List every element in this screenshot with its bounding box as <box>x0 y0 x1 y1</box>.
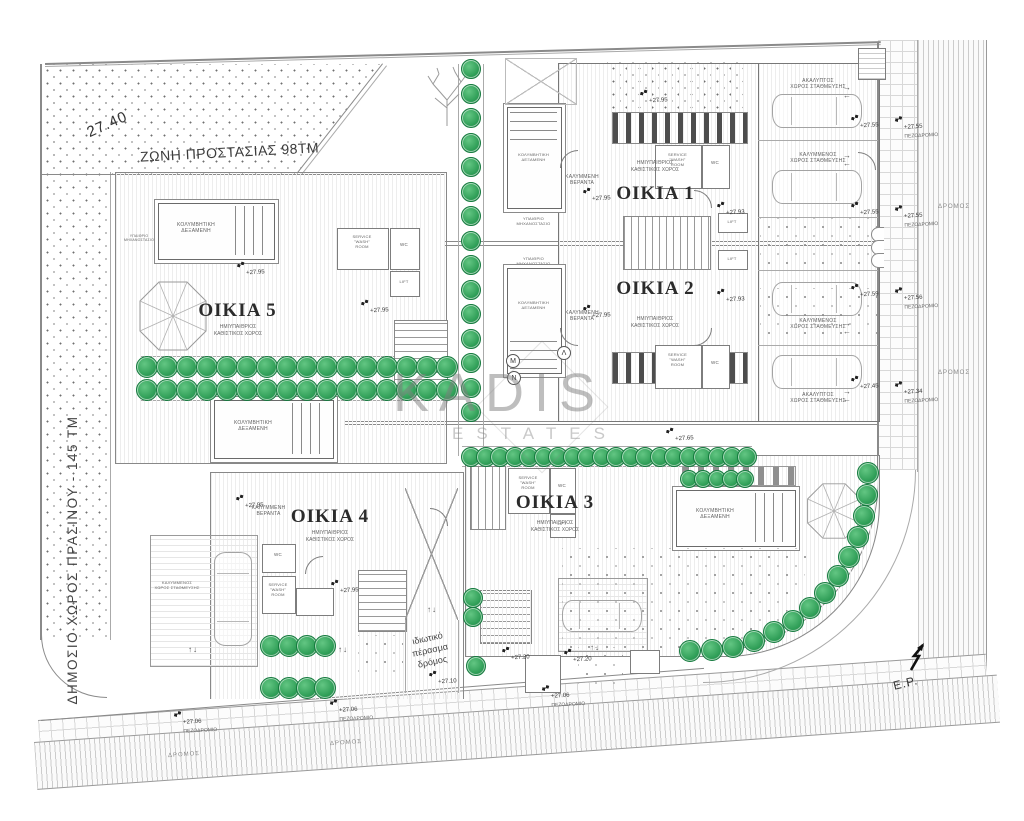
elevation-marker: +27.95 <box>237 493 264 512</box>
elevation-value: +27.95 <box>340 587 359 594</box>
elevation-value: +27.34 <box>904 389 923 396</box>
elevation-marker: +27.56ΠΕΖΟΔΡΟΜΙΟ <box>895 285 938 311</box>
elevation-marker: +27.20 <box>503 645 530 664</box>
elevation-marker: +27.95 <box>584 303 611 322</box>
updown-arrows-icon: ↑↓ <box>427 606 437 614</box>
elevation-marker: +27.10 <box>430 669 457 688</box>
benchmark-flag-icon <box>895 380 902 387</box>
elevation-value: +27.93 <box>726 296 745 303</box>
elevation-value: +27.93 <box>726 209 745 216</box>
elevation-marker: +27.45 <box>852 374 879 393</box>
benchmark-flag-icon <box>331 579 338 586</box>
benchmark-flag-icon <box>717 201 724 208</box>
elevation-value: +27.20 <box>573 656 592 663</box>
benchmark-flag-icon <box>361 299 368 306</box>
benchmark-flag-icon <box>895 115 902 122</box>
benchmark-flag-icon <box>502 646 509 653</box>
elevation-value: +27.06 <box>339 707 358 714</box>
sidewalk-label: ΠΕΖΟΔΡΟΜΙΟ <box>339 716 373 723</box>
benchmark-flag-icon <box>583 187 590 194</box>
elevation-marker: +27.95 <box>584 186 611 205</box>
elevation-value: +27.56 <box>904 295 923 302</box>
benchmark-flag-icon <box>851 114 858 121</box>
elevation-value: +27.95 <box>592 195 611 202</box>
elevation-value: +27.95 <box>370 307 389 314</box>
benchmark-flag-icon <box>895 204 902 211</box>
elevation-value: +27.59 <box>860 291 879 298</box>
benchmark-flag-icon <box>429 670 436 677</box>
leftright-arrows-icon: → ← <box>843 388 852 404</box>
benchmark-flag-icon <box>717 288 724 295</box>
watermark-tagline: ESTATES <box>452 424 618 444</box>
elevation-value: +27.95 <box>592 312 611 319</box>
elevation-marker: +27.95 <box>641 88 668 107</box>
elevation-value: +27.06 <box>551 693 570 700</box>
elevation-marker: +27.55 <box>852 113 879 132</box>
elevation-marker: +27.34ΠΕΖΟΔΡΟΜΙΟ <box>895 379 938 405</box>
elevation-marker: +27.59 <box>852 282 879 301</box>
site-plan-canvas: SERVICE "WASH" ROOM WC LIFT LIFT SERVICE… <box>0 0 1024 821</box>
watermark-name: KADIS <box>393 362 605 424</box>
benchmark-flag-icon <box>237 261 244 268</box>
benchmark-flag-icon <box>583 304 590 311</box>
benchmark-flag-icon <box>851 375 858 382</box>
elevation-marker: +27.95 <box>362 298 389 317</box>
leftright-arrows-icon: → ← <box>843 152 852 168</box>
benchmark-flag-icon <box>330 698 337 705</box>
elevation-marker: +27.06ΠΕΖΟΔΡΟΜΙΟ <box>542 683 585 709</box>
elevation-value: +27.95 <box>246 269 265 276</box>
elevation-value: +27.55 <box>904 213 923 220</box>
elevation-marker: +27.55ΠΕΖΟΔΡΟΜΙΟ <box>895 114 938 140</box>
benchmark-flag-icon <box>564 648 571 655</box>
elevation-value: +27.55 <box>860 209 879 216</box>
sidewalk-label: ΠΕΖΟΔΡΟΜΙΟ <box>904 133 938 140</box>
elevation-marker: +27.93 <box>718 200 745 219</box>
elevation-marker: +27.55 <box>852 200 879 219</box>
elevation-value: +27.65 <box>675 435 694 442</box>
sidewalk-label: ΠΕΖΟΔΡΟΜΙΟ <box>904 398 938 405</box>
benchmark-flag-icon <box>851 201 858 208</box>
sidewalk-label: ΠΕΖΟΔΡΟΜΙΟ <box>551 702 585 709</box>
elevation-value: +27.95 <box>245 502 264 509</box>
elevation-marker: +27.20 <box>565 647 592 666</box>
updown-arrows-icon: ↑↓ <box>338 646 348 654</box>
benchmark-flag-icon <box>666 427 673 434</box>
elevation-value: +27.06 <box>183 719 202 726</box>
leftright-arrows-icon: → ← <box>843 84 852 100</box>
elevation-marker: +27.06ΠΕΖΟΔΡΟΜΙΟ <box>174 709 217 735</box>
elevation-value: +27.45 <box>860 383 879 390</box>
benchmark-flag-icon <box>542 684 549 691</box>
elevation-marker: +27.95 <box>238 260 265 279</box>
benchmark-flag-icon <box>851 283 858 290</box>
benchmark-flag-icon <box>640 89 647 96</box>
elevation-value: +27.10 <box>438 678 457 685</box>
benchmark-flag-icon <box>236 494 243 501</box>
elevation-value: +27.55 <box>860 122 879 129</box>
updown-arrows-icon: ↑↓ <box>590 644 600 652</box>
elevation-marker: +27.06ΠΕΖΟΔΡΟΜΙΟ <box>330 697 373 723</box>
elevation-marker: +27.93 <box>718 287 745 306</box>
sidewalk-label: ΠΕΖΟΔΡΟΜΙΟ <box>904 222 938 229</box>
elevation-marker: +27.65 <box>667 426 694 445</box>
elevation-marker: +27.55ΠΕΖΟΔΡΟΜΙΟ <box>895 203 938 229</box>
elevation-marker: +27.95 <box>332 578 359 597</box>
leftright-arrows-icon: → ← <box>843 320 852 336</box>
benchmark-flag-icon <box>895 286 902 293</box>
updown-arrows-icon: ↑↓ <box>188 646 198 654</box>
sidewalk-label: ΠΕΖΟΔΡΟΜΙΟ <box>183 728 217 735</box>
elevation-value: +27.20 <box>511 654 530 661</box>
benchmark-flag-icon <box>174 710 181 717</box>
elevation-value: +27.95 <box>649 97 668 104</box>
elevation-value: +27.55 <box>904 124 923 131</box>
sidewalk-label: ΠΕΖΟΔΡΟΜΙΟ <box>904 304 938 311</box>
